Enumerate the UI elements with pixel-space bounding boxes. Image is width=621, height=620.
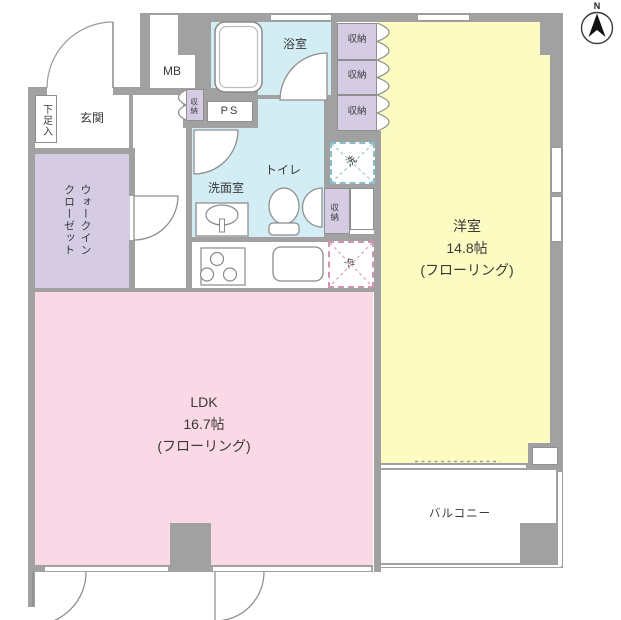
entrance-door-arc <box>47 22 113 88</box>
wic-door-arc <box>134 196 178 240</box>
wall-niche-top <box>324 131 374 142</box>
balcony-corner-box <box>532 447 558 465</box>
bottom-door-arc-2 <box>215 572 264 620</box>
pipe-space-label: PS <box>207 105 253 118</box>
wall-washroom-bottom <box>192 237 332 242</box>
shoe-cabinet-label: 下足入 <box>40 100 52 140</box>
ldk-size: 16.7帖 <box>54 413 354 435</box>
western-room-floor: (フローリング) <box>377 259 557 281</box>
wall-niche-mid2 <box>324 234 374 241</box>
bathroom-label: 浴室 <box>270 38 320 52</box>
toilet-label: トイレ <box>253 164 313 178</box>
window-right-1 <box>551 147 562 193</box>
kitchen-sink <box>273 247 323 281</box>
meter-box-label: MB <box>152 65 192 79</box>
western-room-name: 洋室 <box>377 215 557 237</box>
wall-bath-toilet <box>255 95 332 99</box>
mid-storage-label: 収納 <box>329 194 339 230</box>
bathroom-area <box>211 22 332 95</box>
toilet-area <box>258 99 332 129</box>
wic-label: ウォークイン クローゼット <box>60 160 93 280</box>
wall-entrance-bottom <box>28 148 135 154</box>
wall-wic-right-b <box>129 240 135 292</box>
wall-ldk-top <box>28 288 375 292</box>
stove-burner-3 <box>224 268 237 281</box>
hall-storage-label: 収納 <box>189 92 198 120</box>
compass-icon <box>582 13 613 44</box>
floor-plan: 玄関 下足入 MB PS 収納 浴室 トイレ 洗面室 ウォークイン クローゼット… <box>0 0 621 620</box>
ldk-name: LDK <box>54 391 354 413</box>
mid-closet-box <box>350 188 374 230</box>
wall-entrance-step <box>129 95 133 153</box>
meter-box-shape-top <box>150 15 178 55</box>
storage-top-1-label: 収納 <box>338 35 376 46</box>
wall-left <box>28 87 35 607</box>
wall-washroom-left <box>186 120 192 292</box>
washroom-label: 洗面室 <box>195 182 257 196</box>
balcony-label: バルコニー <box>400 508 520 521</box>
stove-burner-2 <box>201 268 214 281</box>
window-bottom-1 <box>45 567 168 572</box>
window-top-1 <box>270 14 332 21</box>
compass-n-label: N <box>587 1 607 11</box>
ldk-label: LDK 16.7帖 (フローリング) <box>54 391 354 457</box>
wall-wic-right-a <box>129 153 135 196</box>
storage-top-3-label: 収納 <box>338 107 376 118</box>
balcony-window-inset <box>381 465 526 468</box>
ldk-floor: (フローリング) <box>54 435 354 457</box>
wall-main-vertical <box>374 131 381 572</box>
window-top-2 <box>417 14 470 21</box>
western-room-size: 14.8帖 <box>377 237 557 259</box>
window-bottom-2 <box>213 567 371 572</box>
compass-north-arrow <box>589 14 606 38</box>
storage-top-2-label: 収納 <box>338 71 376 82</box>
western-room-label: 洋室 14.8帖 (フローリング) <box>377 215 557 281</box>
bottom-door-arc-1 <box>33 572 86 620</box>
entrance-label: 玄関 <box>62 112 122 126</box>
stove <box>201 248 245 285</box>
balcony-bottom-rail-inset <box>381 565 561 568</box>
wall-entrance-top-b <box>113 87 148 95</box>
wall-corner-step <box>540 22 563 55</box>
wall-entrance-top-a <box>28 87 47 95</box>
stove-burner-1 <box>211 253 224 266</box>
balcony-right-rail-inset <box>558 472 562 566</box>
